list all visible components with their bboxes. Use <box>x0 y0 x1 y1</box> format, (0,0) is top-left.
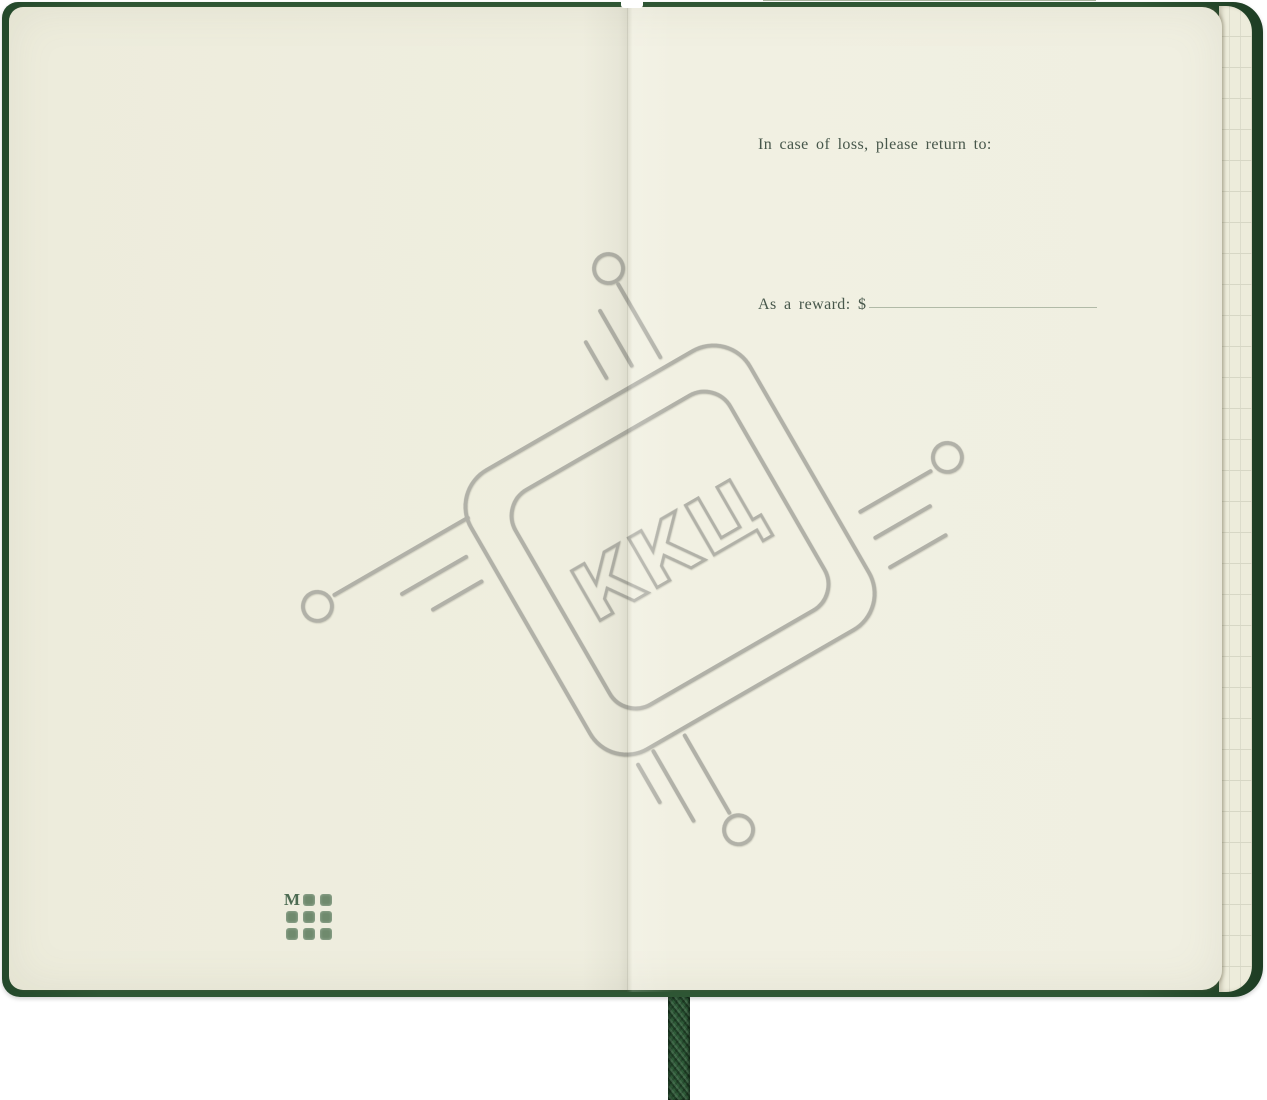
brand-logo-dot <box>303 894 315 906</box>
brand-logo-dot <box>286 911 298 923</box>
circuit-pin <box>399 554 469 596</box>
ribbon-bookmark <box>668 985 690 1100</box>
address-rule-line <box>763 0 1096 1</box>
brand-logo-letter: M <box>286 894 298 906</box>
brand-logo-dot <box>303 911 315 923</box>
circuit-pin <box>873 503 933 540</box>
brand-logo: M <box>286 894 332 940</box>
brand-logo-dot <box>286 928 298 940</box>
spine-top-notch <box>621 0 643 8</box>
notebook-photo: ККЦ In case of loss, please return to: A… <box>0 0 1267 1100</box>
circuit-pin <box>332 515 471 597</box>
brand-logo-dot <box>320 911 332 923</box>
return-to-label: In case of loss, please return to: <box>758 136 992 154</box>
brand-logo-dot <box>320 894 332 906</box>
circuit-pin <box>635 762 662 805</box>
brand-logo-dot <box>320 928 332 940</box>
circuit-pin <box>583 340 609 381</box>
reward-label: As a reward: $ <box>758 296 866 314</box>
squared-page-stack-edge <box>1219 6 1252 992</box>
watermark-text: ККЦ <box>498 378 842 722</box>
circuit-pin <box>651 749 696 824</box>
reward-rule-line <box>869 307 1097 308</box>
circuit-node <box>925 435 970 480</box>
circuit-pin <box>887 533 948 570</box>
circuit-pin <box>597 308 634 368</box>
circuit-node <box>716 807 761 852</box>
brand-logo-dot <box>303 928 315 940</box>
circuit-pin <box>682 733 732 816</box>
circuit-node <box>586 246 631 291</box>
circuit-pin <box>430 579 484 612</box>
